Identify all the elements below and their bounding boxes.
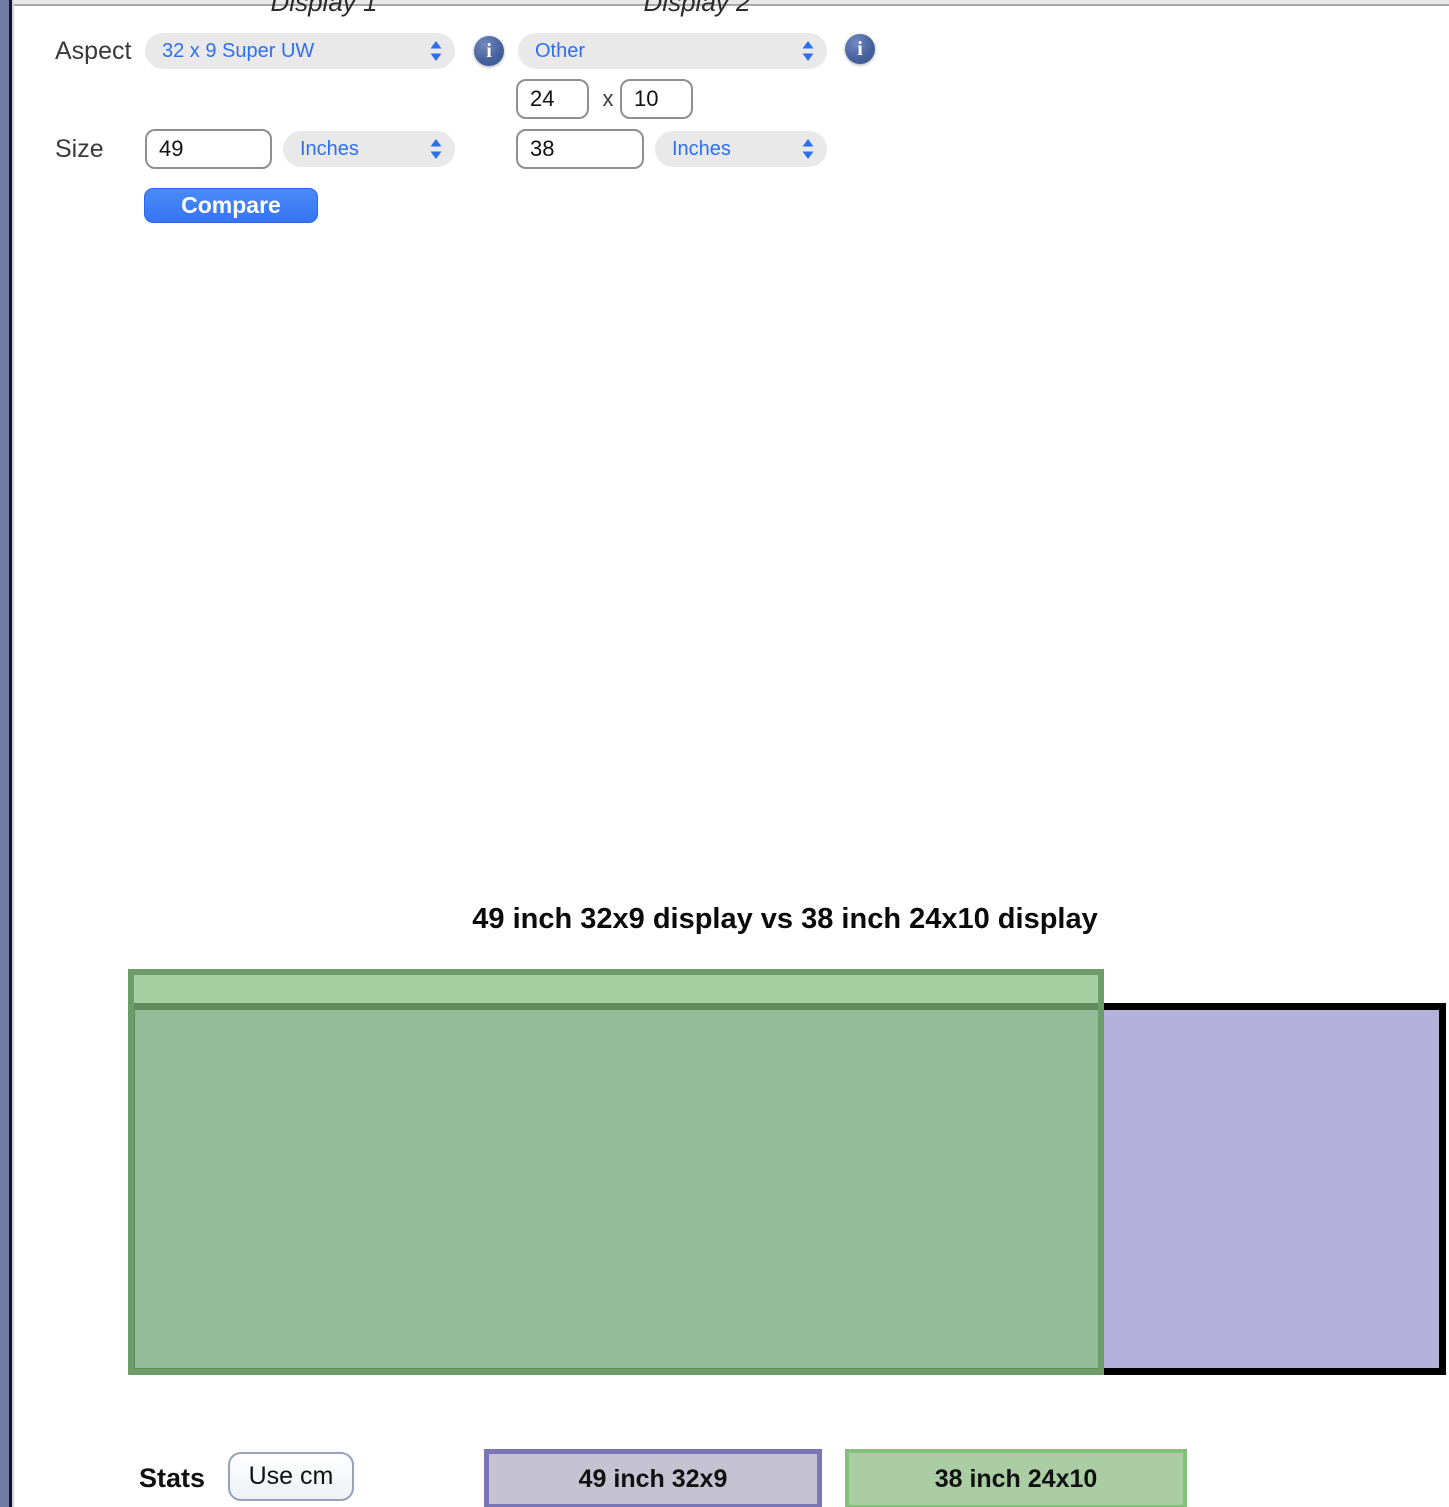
display2-aspect-value: Other [535,40,585,63]
info-icon-glyph: i [486,40,492,63]
window-edge-inner [12,0,14,1507]
comparison-title: 49 inch 32x9 display vs 38 inch 24x10 di… [120,903,1449,936]
select-chevron-icon [429,40,443,62]
info-icon[interactable]: i [474,36,504,66]
display2-size-input[interactable] [516,129,644,169]
display1-size-input[interactable] [145,129,272,169]
compare-button[interactable]: Compare [144,188,318,223]
display2-aspect-width-input[interactable] [516,79,589,119]
select-chevron-icon [429,138,443,160]
info-icon[interactable]: i [845,34,875,64]
display2-legend-badge: 38 inch 24x10 [845,1449,1187,1507]
display1-unit-select[interactable]: Inches [283,131,455,167]
display2-unit-select[interactable]: Inches [655,131,827,167]
window-edge [0,0,9,1507]
display1-column-header: Display 1 [214,0,434,18]
display2-unit-value: Inches [672,138,731,161]
select-chevron-icon [801,40,815,62]
aspect-label: Aspect [55,37,131,66]
display2-aspect-height-input[interactable] [620,79,693,119]
use-cm-button[interactable]: Use cm [228,1452,354,1501]
size-label: Size [55,135,104,164]
display1-aspect-value: 32 x 9 Super UW [162,40,314,63]
info-icon-glyph: i [857,38,863,61]
select-chevron-icon [801,138,815,160]
display1-unit-value: Inches [300,138,359,161]
display1-legend-badge: 49 inch 32x9 [484,1449,822,1507]
page: Display 1 Display 2 Aspect 32 x 9 Super … [0,0,1449,1507]
stats-label: Stats [139,1463,205,1494]
dimension-separator: x [596,86,620,112]
display2-rectangle [128,969,1104,1375]
display2-column-header: Display 2 [587,0,807,18]
display1-aspect-select[interactable]: 32 x 9 Super UW [145,33,455,69]
display2-aspect-select[interactable]: Other [518,33,827,69]
